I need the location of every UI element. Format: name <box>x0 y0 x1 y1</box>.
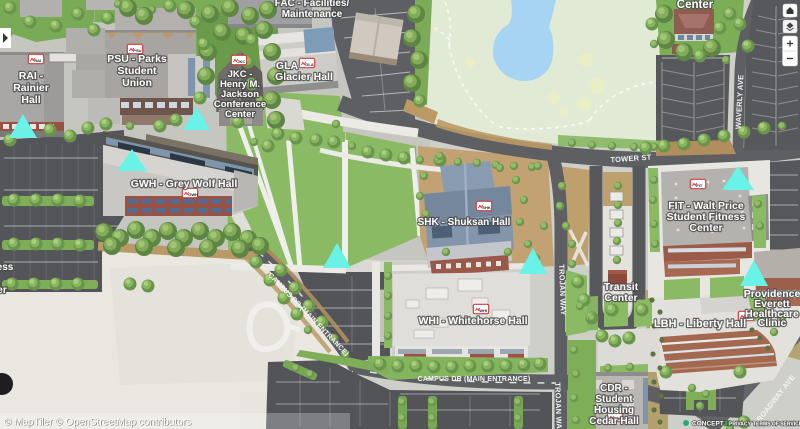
svg-text:Glacier Hall: Glacier Hall <box>275 71 333 83</box>
svg-text:WHI - Whitehorse Hall: WHI - Whitehorse Hall <box>418 315 527 327</box>
svg-text:GWH - Grey Wolf Hall: GWH - Grey Wolf Hall <box>131 178 238 190</box>
svg-text:ess: ess <box>0 262 14 273</box>
svg-text:CAMPUS DR (MAIN ENTRANCE): CAMPUS DR (MAIN ENTRANCE) <box>418 376 531 383</box>
svg-text:TROJAN WAY: TROJAN WAY <box>553 382 564 429</box>
svg-text:Center: Center <box>677 0 714 11</box>
svg-text:Center: Center <box>604 292 637 304</box>
svg-text:PRIVACY: PRIVACY <box>729 422 752 428</box>
svg-text:TERMS OF SERVICE: TERMS OF SERVICE <box>753 422 800 428</box>
svg-text:Center: Center <box>225 109 255 120</box>
svg-text:Rainier: Rainier <box>13 82 49 94</box>
svg-text:Cedar Hall: Cedar Hall <box>589 416 639 427</box>
svg-text:Student: Student <box>117 65 157 77</box>
svg-text:SHK - Shuksan Hall: SHK - Shuksan Hall <box>418 217 511 228</box>
svg-text:SHK: SHK <box>482 205 491 210</box>
svg-text:er: er <box>0 285 7 296</box>
svg-text:PSU - Parks: PSU - Parks <box>107 53 167 65</box>
svg-text:Student: Student <box>595 394 633 405</box>
svg-text:Clinic: Clinic <box>758 317 787 329</box>
svg-text:Union: Union <box>122 77 152 89</box>
svg-text:JKC: JKC <box>237 59 245 64</box>
svg-text:LBH - Liberty Hall: LBH - Liberty Hall <box>654 318 746 330</box>
svg-text:RAI -: RAI - <box>19 70 44 82</box>
svg-text:Housing: Housing <box>594 405 634 416</box>
svg-text:GWH: GWH <box>188 192 198 197</box>
svg-text:GLA: GLA <box>305 62 314 67</box>
svg-text:CDR -: CDR - <box>600 383 628 394</box>
svg-text:Maintenance: Maintenance <box>282 9 343 20</box>
svg-text:© MapTiler © OpenStreetMap con: © MapTiler © OpenStreetMap contributors <box>4 417 191 428</box>
svg-text:Center: Center <box>689 222 722 234</box>
svg-text:WHI: WHI <box>479 308 487 313</box>
svg-text:FAC - Facilities/: FAC - Facilities/ <box>275 0 350 9</box>
svg-text:CONCEPT3D: CONCEPT3D <box>692 421 732 428</box>
svg-text:RAI: RAI <box>34 58 41 63</box>
svg-text:FIT: FIT <box>696 183 703 188</box>
svg-text:TROJAN WAY: TROJAN WAY <box>557 264 568 316</box>
svg-text:Hall: Hall <box>21 94 40 106</box>
